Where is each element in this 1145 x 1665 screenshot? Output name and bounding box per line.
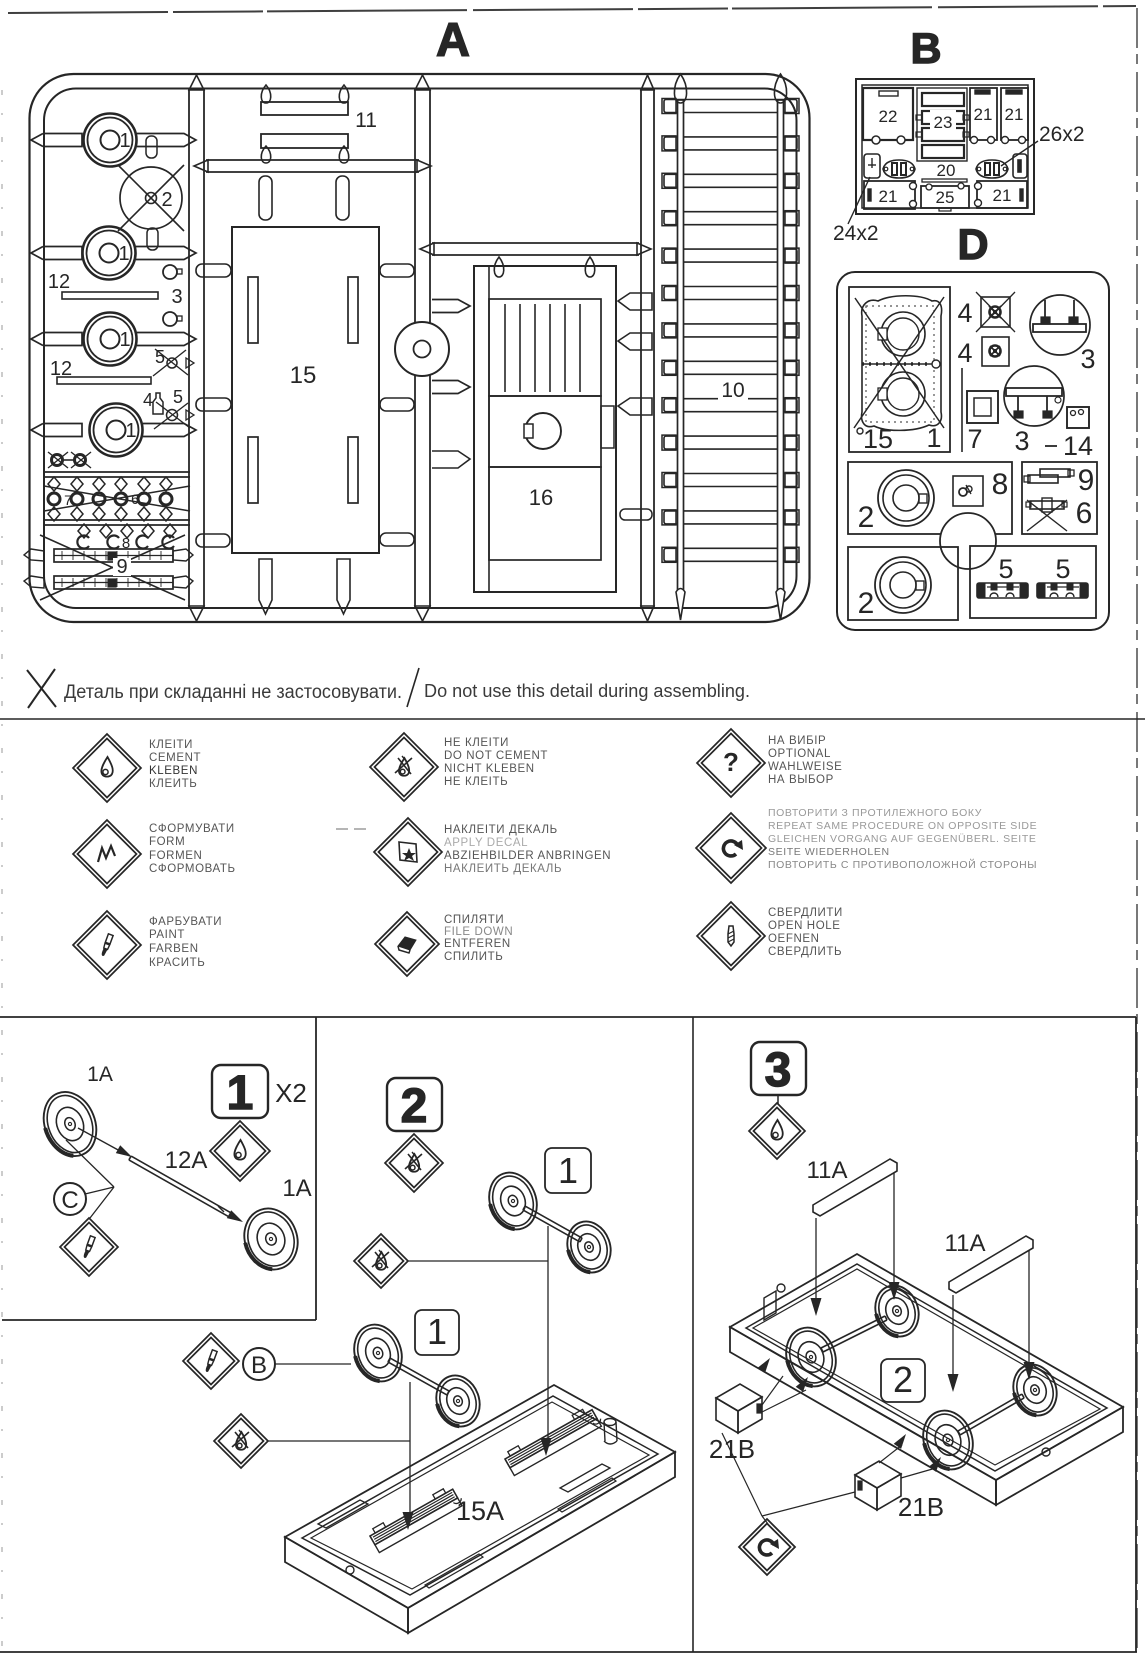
svg-text:ABZIEHBILDER ANBRINGEN: ABZIEHBILDER ANBRINGEN	[444, 850, 611, 862]
svg-text:15: 15	[290, 362, 317, 389]
svg-text:22: 22	[879, 107, 898, 126]
svg-text:Do not use this detail during: Do not use this detail during assembling…	[424, 681, 750, 701]
svg-text:15: 15	[863, 424, 893, 454]
svg-text:3: 3	[1014, 426, 1029, 456]
svg-text:7: 7	[967, 424, 982, 454]
svg-text:NICHT KLEBEN: NICHT KLEBEN	[444, 763, 535, 775]
svg-text:21: 21	[879, 187, 898, 206]
svg-text:2: 2	[161, 189, 172, 211]
svg-text:5: 5	[998, 554, 1013, 584]
svg-text:12A: 12A	[165, 1147, 208, 1174]
svg-text:1A: 1A	[282, 1175, 311, 1202]
svg-text:23: 23	[934, 113, 953, 132]
svg-text:D: D	[957, 221, 988, 269]
svg-text:СВЕРДЛИТИ: СВЕРДЛИТИ	[768, 907, 843, 919]
svg-text:14: 14	[1063, 431, 1093, 461]
svg-text:НАКЛЕИТЬ ДЕКАЛЬ: НАКЛЕИТЬ ДЕКАЛЬ	[444, 863, 562, 875]
svg-text:20: 20	[937, 161, 956, 180]
svg-text:?: ?	[723, 747, 739, 777]
svg-text:21: 21	[993, 186, 1012, 205]
svg-text:1: 1	[119, 130, 130, 152]
svg-text:15A: 15A	[456, 1496, 504, 1526]
svg-text:1: 1	[926, 423, 941, 453]
svg-text:4: 4	[143, 390, 153, 410]
svg-text:DO NOT CEMENT: DO NOT CEMENT	[444, 750, 548, 762]
svg-text:СПИЛИТЬ: СПИЛИТЬ	[444, 951, 503, 963]
svg-text:СФОРМУВАТИ: СФОРМУВАТИ	[149, 823, 235, 835]
svg-text:КЛЕИТЬ: КЛЕИТЬ	[149, 778, 197, 790]
svg-text:1: 1	[427, 1311, 447, 1352]
svg-text:НА ВИБІР: НА ВИБІР	[768, 735, 826, 747]
svg-text:21: 21	[1005, 105, 1024, 124]
svg-text:11: 11	[355, 109, 377, 132]
svg-text:2: 2	[893, 1359, 913, 1400]
svg-text:24x2: 24x2	[833, 222, 879, 245]
svg-text:16: 16	[529, 485, 553, 510]
svg-text:ФАРБУВАТИ: ФАРБУВАТИ	[149, 916, 222, 928]
svg-text:ПОВТОРИТИ З ПРОТИЛЕЖНОГО БОКУ: ПОВТОРИТИ З ПРОТИЛЕЖНОГО БОКУ	[768, 807, 982, 819]
svg-text:2: 2	[858, 501, 875, 534]
svg-text:5: 5	[1055, 554, 1070, 584]
svg-text:APPLY DECAL: APPLY DECAL	[444, 837, 528, 849]
svg-text:НЕ КЛЕІТИ: НЕ КЛЕІТИ	[444, 737, 509, 749]
svg-text:21B: 21B	[709, 1434, 755, 1464]
svg-text:НАКЛЕІТИ ДЕКАЛЬ: НАКЛЕІТИ ДЕКАЛЬ	[444, 824, 558, 836]
svg-text:X2: X2	[275, 1078, 307, 1108]
svg-text:1: 1	[558, 1150, 578, 1191]
svg-text:ПОВТОРИТЬ С ПРОТИВОПОЛОЖНОЙ СТ: ПОВТОРИТЬ С ПРОТИВОПОЛОЖНОЙ СТОРОНЫ	[768, 858, 1037, 871]
svg-text:ENTFEREN: ENTFEREN	[444, 938, 511, 950]
svg-text:1: 1	[118, 243, 129, 265]
svg-text:REPEAT SAME PROCEDURE ON OPPOS: REPEAT SAME PROCEDURE ON OPPOSITE SIDE	[768, 820, 1037, 832]
svg-text:FORM: FORM	[149, 836, 185, 848]
svg-text:6: 6	[131, 491, 139, 507]
svg-text:11A: 11A	[807, 1157, 848, 1184]
svg-text:8: 8	[992, 468, 1009, 501]
svg-text:OPEN HOLE: OPEN HOLE	[768, 920, 841, 932]
svg-text:НА ВЫБОР: НА ВЫБОР	[768, 774, 834, 786]
svg-text:КЛЕІТИ: КЛЕІТИ	[149, 739, 193, 751]
svg-text:C: C	[61, 1187, 78, 1214]
svg-text:4: 4	[957, 298, 972, 328]
svg-text:СФОРМОВАТЬ: СФОРМОВАТЬ	[149, 863, 236, 875]
svg-text:2: 2	[401, 1080, 428, 1133]
svg-text:СПИЛЯТИ: СПИЛЯТИ	[444, 914, 504, 926]
svg-text:СВЕРДЛИТЬ: СВЕРДЛИТЬ	[768, 946, 842, 958]
svg-text:КРАСИТЬ: КРАСИТЬ	[149, 957, 205, 969]
svg-text:FORMEN: FORMEN	[149, 850, 202, 862]
svg-text:Деталь при складанні не застос: Деталь при складанні не застосовувати.	[64, 682, 402, 703]
svg-text:1A: 1A	[87, 1063, 113, 1086]
svg-text:9: 9	[1078, 464, 1095, 497]
svg-text:PAINT: PAINT	[149, 929, 185, 941]
svg-text:1: 1	[125, 420, 136, 442]
svg-text:KLEBEN: KLEBEN	[149, 765, 198, 777]
svg-text:9: 9	[116, 556, 127, 578]
svg-text:НЕ КЛЕІТЬ: НЕ КЛЕІТЬ	[444, 776, 508, 788]
svg-text:2: 2	[858, 587, 875, 620]
svg-text:26x2: 26x2	[1039, 123, 1085, 146]
svg-text:3: 3	[765, 1044, 792, 1097]
svg-text:21: 21	[974, 105, 993, 124]
svg-text:11A: 11A	[945, 1230, 986, 1257]
svg-text:OPTIONAL: OPTIONAL	[768, 748, 831, 760]
svg-text:6: 6	[1076, 497, 1093, 530]
svg-text:3: 3	[171, 286, 182, 308]
svg-text:12: 12	[48, 271, 70, 293]
svg-text:WAHLWEISE: WAHLWEISE	[768, 761, 842, 773]
svg-text:21B: 21B	[898, 1492, 944, 1522]
svg-text:3: 3	[1080, 344, 1095, 374]
svg-text:B: B	[910, 25, 941, 73]
svg-text:CEMENT: CEMENT	[149, 752, 201, 764]
svg-text:10: 10	[721, 379, 744, 402]
svg-text:1: 1	[227, 1067, 254, 1120]
svg-text:FILE DOWN: FILE DOWN	[444, 926, 513, 938]
svg-text:4: 4	[957, 338, 972, 368]
svg-text:B: B	[251, 1352, 267, 1379]
svg-text:SEITE WIEDERHOLEN: SEITE WIEDERHOLEN	[768, 846, 890, 858]
svg-text:A: A	[436, 13, 470, 66]
svg-text:1: 1	[119, 329, 130, 351]
svg-text:GLEICHEN VORGANG AUF GEGENÜBER: GLEICHEN VORGANG AUF GEGENÜBERL. SEITE	[768, 833, 1036, 845]
svg-text:25: 25	[936, 188, 955, 207]
svg-text:OEFNEN: OEFNEN	[768, 933, 820, 945]
svg-text:5: 5	[173, 387, 183, 407]
svg-text:7: 7	[64, 492, 72, 508]
svg-text:FARBEN: FARBEN	[149, 943, 199, 955]
